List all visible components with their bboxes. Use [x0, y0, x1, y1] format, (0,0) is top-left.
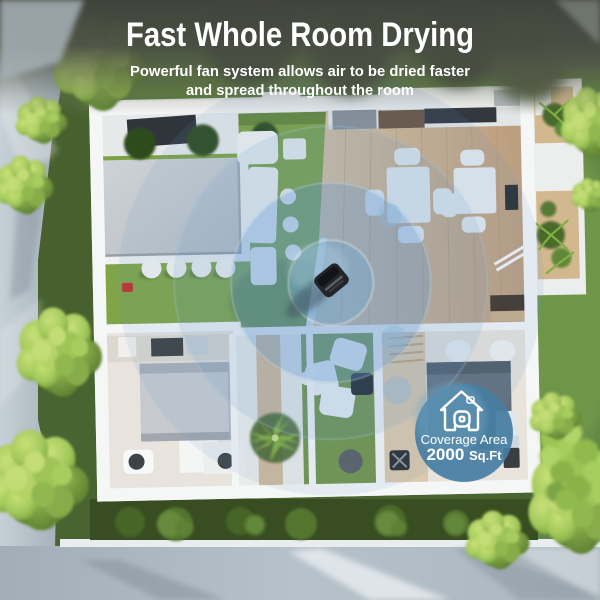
svg-text:2000 Sq.Ft: 2000 Sq.Ft [426, 445, 502, 464]
svg-text:and spread throughout the room: and spread throughout the room [186, 83, 414, 99]
svg-text:Powerful fan system allows air: Powerful fan system allows air to be dri… [130, 64, 470, 80]
svg-text:Fast Whole Room Drying: Fast Whole Room Drying [126, 16, 474, 54]
